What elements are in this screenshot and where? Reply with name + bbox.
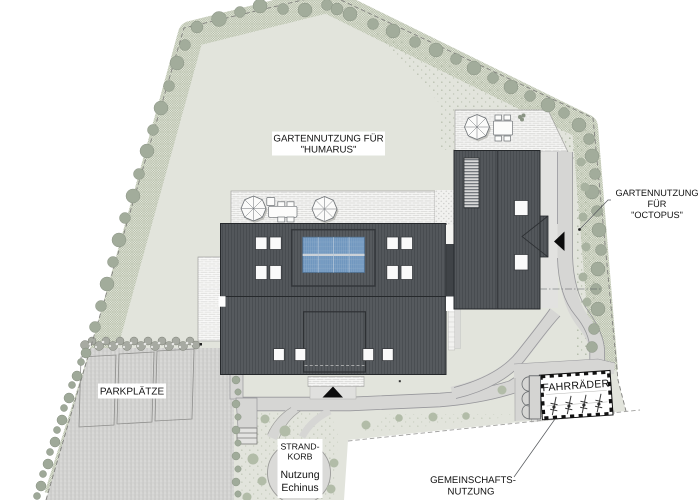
svg-text:GARTENNUTZUNG: GARTENNUTZUNG — [615, 188, 698, 198]
svg-text:STRAND-: STRAND- — [280, 442, 319, 452]
svg-text:Echinus: Echinus — [281, 482, 318, 494]
svg-text:GEMEINSCHAFTS-: GEMEINSCHAFTS- — [430, 475, 516, 486]
svg-text:KORB: KORB — [288, 452, 313, 462]
svg-text:NUTZUNG: NUTZUNG — [448, 487, 495, 498]
svg-text:FÜR: FÜR — [648, 199, 667, 209]
svg-text:PARKPLÄTZE: PARKPLÄTZE — [100, 386, 165, 398]
svg-text:Nutzung: Nutzung — [280, 469, 319, 481]
svg-text:"OCTOPUS": "OCTOPUS" — [631, 210, 683, 220]
svg-text:"HUMARUS": "HUMARUS" — [301, 145, 357, 156]
svg-text:GARTENNUTZUNG FÜR: GARTENNUTZUNG FÜR — [273, 133, 383, 145]
